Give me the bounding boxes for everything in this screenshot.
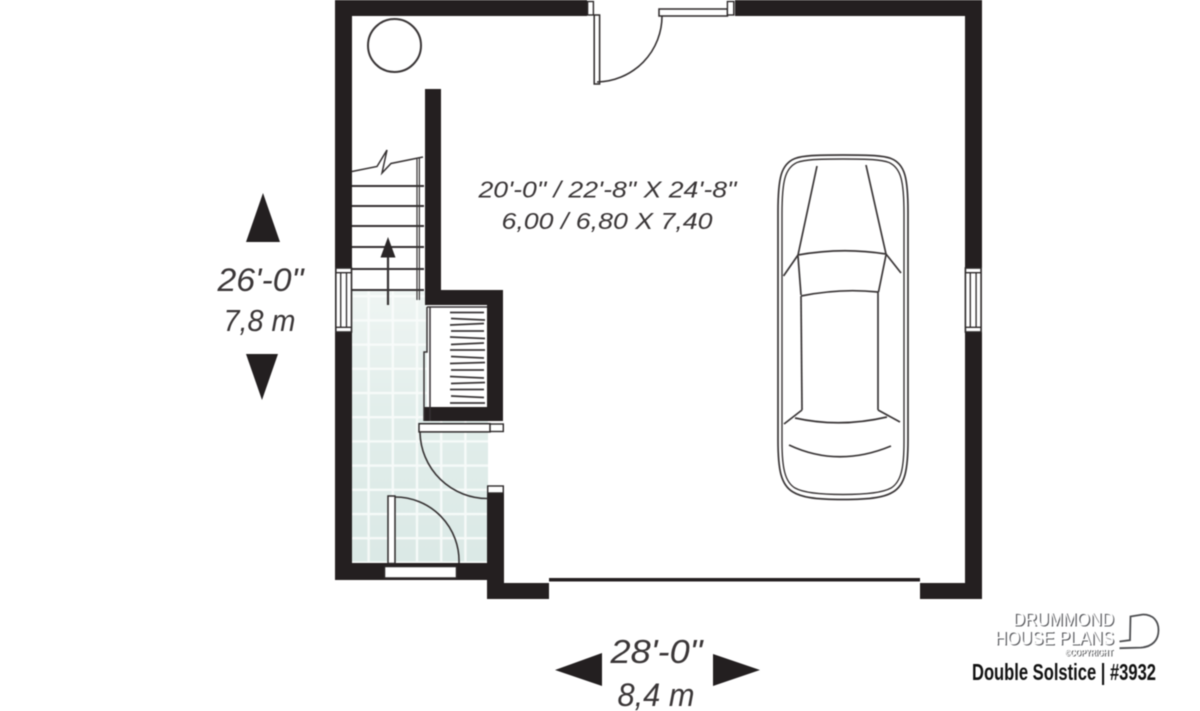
svg-text:DRUMMOND: DRUMMOND bbox=[1013, 610, 1114, 630]
svg-text:7,8 m: 7,8 m bbox=[224, 303, 296, 338]
svg-text:26'-0": 26'-0" bbox=[216, 262, 305, 298]
svg-text:Double Solstice | #3932: Double Solstice | #3932 bbox=[972, 659, 1156, 685]
svg-text:HOUSE PLANS: HOUSE PLANS bbox=[995, 629, 1114, 650]
svg-text:8,4 m: 8,4 m bbox=[618, 677, 695, 711]
svg-text:28'-0": 28'-0" bbox=[609, 633, 703, 670]
svg-text:6,00 / 6,80 X 7,40: 6,00 / 6,80 X 7,40 bbox=[502, 208, 713, 234]
svg-text:©COPYRIGHT: ©COPYRIGHT bbox=[1065, 648, 1113, 658]
svg-text:20'-0" / 22'-8" X 24'-8": 20'-0" / 22'-8" X 24'-8" bbox=[477, 177, 738, 203]
